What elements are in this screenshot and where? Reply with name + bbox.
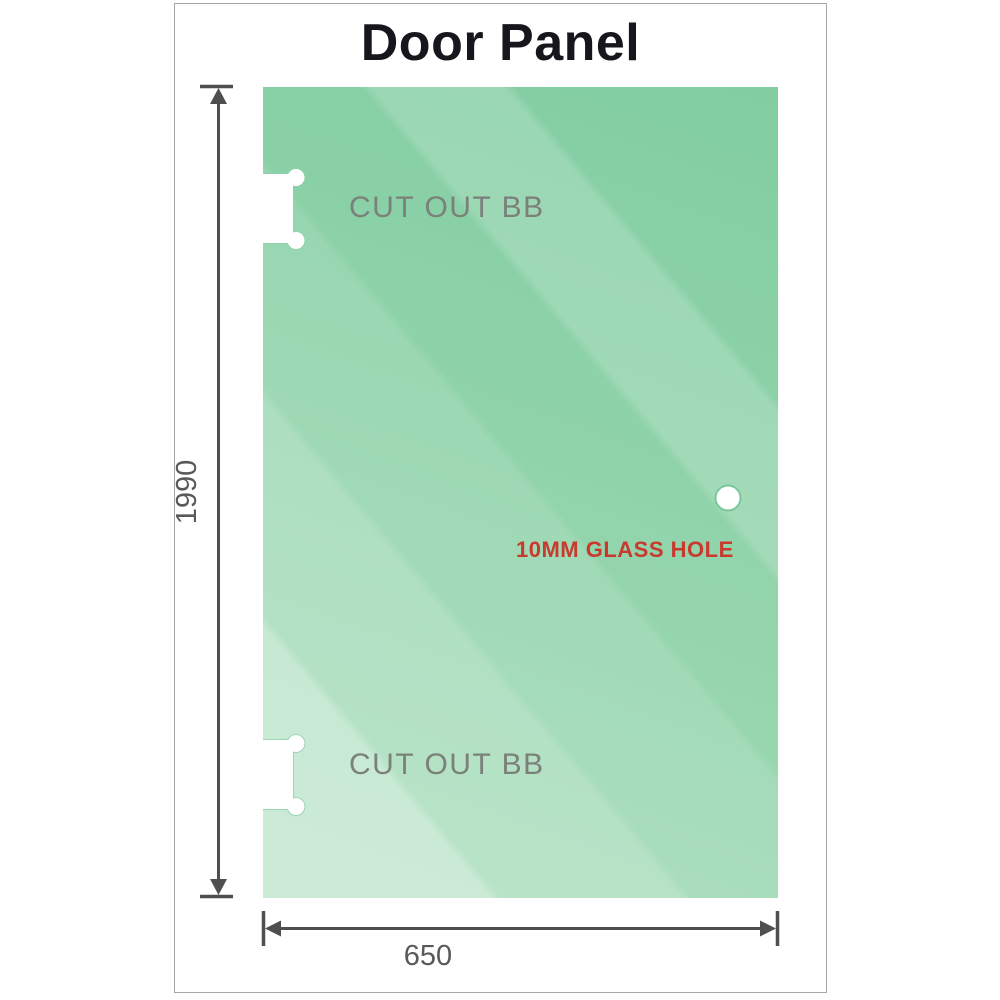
cutout-top-label: CUT OUT BB — [349, 190, 545, 226]
diagram-overlay — [0, 0, 1000, 1000]
cutout-top-shape — [248, 169, 305, 249]
arrowhead-left-icon — [265, 921, 281, 937]
arrowhead-down-icon — [210, 879, 227, 895]
height-dimension — [200, 87, 233, 897]
cutout-bottom-label: CUT OUT BB — [349, 747, 545, 783]
width-dimension-label: 650 — [378, 941, 478, 971]
glass-hole — [716, 486, 741, 511]
arrowhead-right-icon — [760, 921, 776, 937]
glass-hole-label: 10MM GLASS HOLE — [516, 537, 734, 563]
height-dimension-label: 1990 — [172, 432, 202, 552]
door-panel-diagram: Door Panel — [0, 0, 1000, 1000]
cutout-bottom-shape — [248, 735, 305, 815]
arrowhead-up-icon — [210, 88, 227, 104]
width-dimension — [264, 911, 778, 946]
